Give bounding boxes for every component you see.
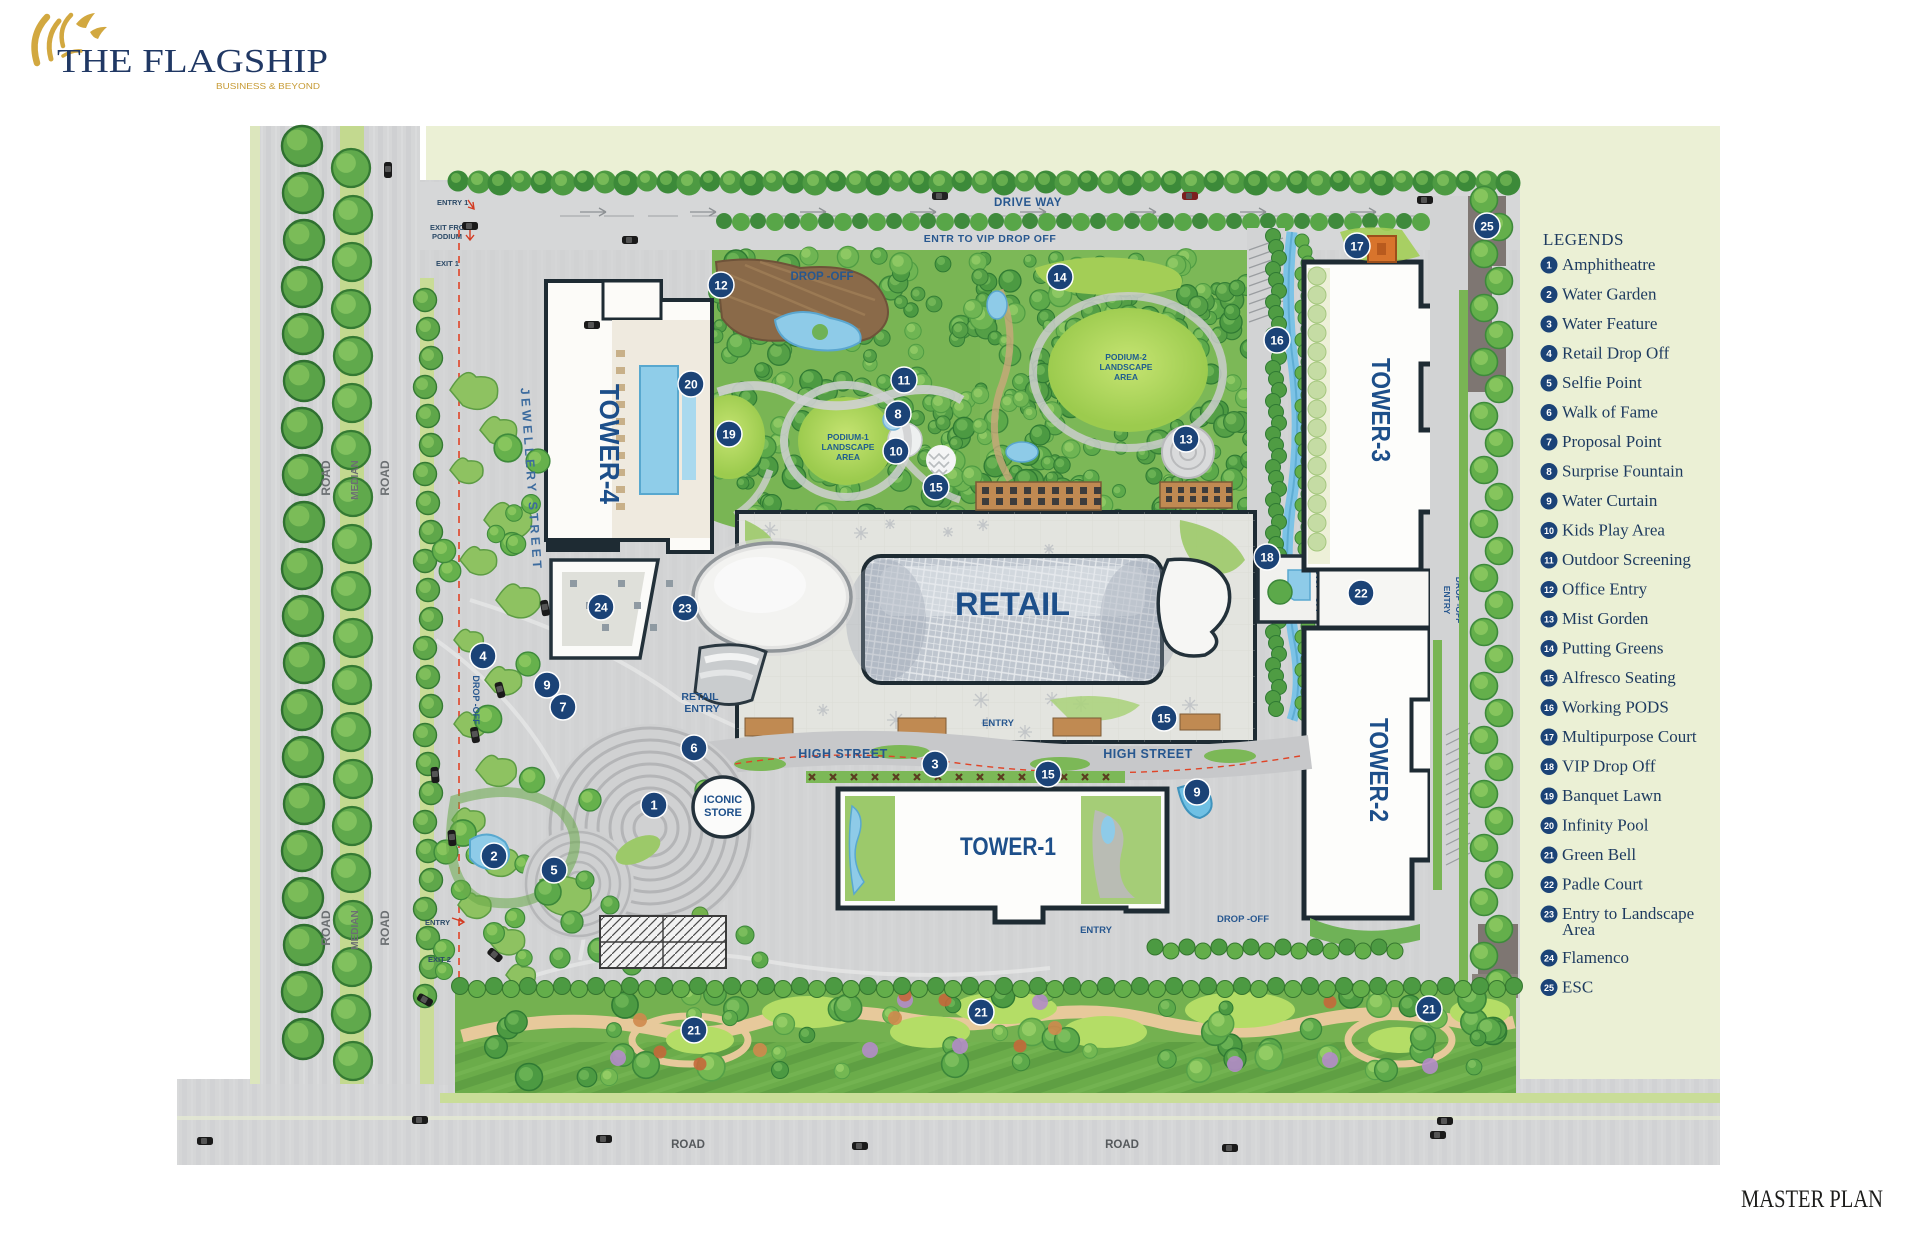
svg-text:Water Garden: Water Garden — [1562, 285, 1657, 304]
svg-text:Infinity Pool: Infinity Pool — [1562, 816, 1649, 835]
svg-text:19: 19 — [1544, 792, 1554, 802]
svg-text:RETAIL: RETAIL — [955, 586, 1070, 622]
svg-text:ROAD: ROAD — [319, 460, 333, 496]
svg-text:20: 20 — [684, 378, 698, 392]
svg-text:10: 10 — [889, 445, 903, 459]
svg-text:ICONIC: ICONIC — [704, 794, 743, 806]
svg-text:9: 9 — [1546, 497, 1552, 508]
svg-text:THE FLAGSHIP: THE FLAGSHIP — [57, 43, 328, 80]
svg-text:20: 20 — [1544, 821, 1554, 831]
svg-text:ENTRY: ENTRY — [1080, 925, 1113, 936]
svg-text:Selfie Point: Selfie Point — [1562, 373, 1642, 392]
svg-text:ROAD: ROAD — [671, 1139, 705, 1151]
svg-text:DROP -OFF: DROP -OFF — [471, 675, 481, 725]
svg-text:22: 22 — [1354, 587, 1368, 601]
svg-text:PODIUM-2: PODIUM-2 — [1105, 352, 1147, 362]
svg-text:13: 13 — [1179, 433, 1193, 447]
svg-text:18: 18 — [1544, 762, 1554, 772]
svg-text:BUSINESS & BEYOND: BUSINESS & BEYOND — [216, 81, 320, 91]
svg-text:Proposal Point: Proposal Point — [1562, 432, 1662, 451]
svg-text:ROAD: ROAD — [319, 910, 333, 946]
svg-text:DROP -OFF: DROP -OFF — [1217, 914, 1269, 925]
svg-text:12: 12 — [714, 279, 728, 293]
svg-text:Retail Drop Off: Retail Drop Off — [1562, 344, 1670, 363]
svg-text:TOWER-1: TOWER-1 — [960, 833, 1056, 861]
svg-text:14: 14 — [1053, 271, 1067, 285]
svg-text:ROAD: ROAD — [1105, 1139, 1139, 1151]
svg-text:19: 19 — [722, 428, 736, 442]
svg-text:25: 25 — [1480, 220, 1494, 234]
svg-text:21: 21 — [974, 1006, 988, 1020]
svg-text:1: 1 — [650, 798, 657, 813]
svg-text:15: 15 — [929, 481, 943, 495]
svg-text:2: 2 — [1546, 290, 1552, 301]
svg-text:Multipurpose Court: Multipurpose Court — [1562, 727, 1697, 746]
svg-text:14: 14 — [1544, 644, 1554, 654]
svg-text:LANDSCAPE: LANDSCAPE — [1100, 362, 1153, 372]
svg-text:AREA: AREA — [1114, 372, 1138, 382]
svg-text:18: 18 — [1260, 551, 1274, 565]
svg-text:8: 8 — [1546, 467, 1552, 478]
svg-text:EXIT 2: EXIT 2 — [428, 955, 451, 964]
svg-text:TOWER-3: TOWER-3 — [1366, 358, 1396, 462]
svg-text:Office Entry: Office Entry — [1562, 580, 1648, 599]
svg-text:12: 12 — [1544, 585, 1554, 595]
svg-text:23: 23 — [678, 602, 692, 616]
svg-text:9: 9 — [543, 678, 550, 693]
svg-text:23: 23 — [1544, 910, 1554, 920]
svg-text:ESC: ESC — [1562, 978, 1593, 997]
svg-text:RETAIL: RETAIL — [681, 691, 719, 703]
svg-text:6: 6 — [1546, 408, 1552, 419]
svg-text:5: 5 — [550, 863, 557, 878]
svg-text:1: 1 — [1546, 261, 1552, 272]
svg-text:24: 24 — [1544, 954, 1554, 964]
svg-text:17: 17 — [1544, 733, 1554, 743]
svg-text:LEGENDS: LEGENDS — [1543, 230, 1624, 249]
svg-text:11: 11 — [898, 374, 911, 388]
svg-text:MEDIAN: MEDIAN — [350, 910, 361, 949]
svg-text:10: 10 — [1544, 526, 1554, 536]
svg-text:15: 15 — [1544, 674, 1554, 684]
svg-text:STORE: STORE — [704, 807, 742, 819]
svg-text:LANDSCAPE: LANDSCAPE — [822, 442, 875, 452]
svg-text:ROAD: ROAD — [378, 460, 392, 496]
svg-text:TOWER-4: TOWER-4 — [594, 384, 625, 504]
svg-text:PODIUM-1: PODIUM-1 — [827, 432, 869, 442]
svg-text:HIGH STREET: HIGH STREET — [1103, 747, 1193, 761]
svg-text:DRIVE WAY: DRIVE WAY — [994, 197, 1062, 209]
svg-text:Water Curtain: Water Curtain — [1562, 491, 1658, 510]
svg-text:13: 13 — [1544, 615, 1554, 625]
svg-text:5: 5 — [1546, 379, 1552, 390]
svg-text:Walk of Fame: Walk of Fame — [1562, 403, 1658, 422]
svg-text:TOWER-2: TOWER-2 — [1364, 718, 1394, 822]
svg-text:ROAD: ROAD — [378, 910, 392, 946]
svg-text:2: 2 — [490, 849, 497, 864]
svg-text:17: 17 — [1350, 240, 1364, 254]
svg-text:EXIT 1: EXIT 1 — [436, 259, 459, 268]
svg-text:ENTRY: ENTRY — [1442, 586, 1452, 615]
svg-text:4: 4 — [1546, 349, 1552, 360]
svg-text:Surprise Fountain: Surprise Fountain — [1562, 462, 1684, 481]
svg-text:Kids Play Area: Kids Play Area — [1562, 521, 1665, 540]
svg-text:ENTRY: ENTRY — [684, 703, 719, 715]
svg-text:VIP Drop Off: VIP Drop Off — [1562, 757, 1656, 776]
svg-text:Alfresco Seating: Alfresco Seating — [1562, 668, 1676, 687]
svg-text:Amphitheatre: Amphitheatre — [1562, 255, 1655, 274]
svg-text:21: 21 — [1544, 851, 1554, 861]
svg-text:Water Feature: Water Feature — [1562, 314, 1657, 333]
svg-text:ENTRY 1: ENTRY 1 — [437, 198, 468, 207]
svg-text:21: 21 — [687, 1024, 701, 1038]
svg-text:25: 25 — [1544, 983, 1554, 993]
svg-text:ENTR TO VIP DROP OFF: ENTR TO VIP DROP OFF — [924, 233, 1057, 245]
svg-text:9: 9 — [1193, 785, 1200, 800]
svg-text:Working PODS: Working PODS — [1562, 698, 1669, 717]
svg-text:24: 24 — [594, 601, 608, 615]
svg-text:Banquet Lawn: Banquet Lawn — [1562, 786, 1662, 805]
svg-text:8: 8 — [894, 407, 901, 422]
svg-text:15: 15 — [1041, 768, 1055, 782]
svg-text:MASTER PLAN: MASTER PLAN — [1741, 1186, 1883, 1213]
svg-text:4: 4 — [479, 649, 487, 664]
svg-text:Putting Greens: Putting Greens — [1562, 639, 1664, 658]
svg-text:ENTRY: ENTRY — [425, 918, 450, 927]
svg-text:HIGH STREET: HIGH STREET — [798, 747, 888, 761]
svg-text:16: 16 — [1544, 703, 1554, 713]
svg-text:6: 6 — [690, 741, 697, 756]
svg-text:3: 3 — [1546, 320, 1552, 331]
svg-text:Padle Court: Padle Court — [1562, 875, 1643, 894]
svg-text:3: 3 — [931, 757, 938, 772]
svg-text:AREA: AREA — [836, 452, 860, 462]
svg-text:DROP -OFF: DROP -OFF — [790, 271, 853, 283]
svg-text:21: 21 — [1422, 1003, 1436, 1017]
svg-text:7: 7 — [559, 700, 566, 715]
svg-text:7: 7 — [1546, 438, 1552, 449]
svg-text:PODIUM: PODIUM — [432, 232, 462, 241]
svg-text:Area: Area — [1562, 920, 1595, 939]
svg-text:22: 22 — [1544, 880, 1554, 890]
svg-text:15: 15 — [1157, 712, 1171, 726]
svg-text:Green Bell: Green Bell — [1562, 845, 1636, 864]
svg-text:11: 11 — [1544, 556, 1554, 566]
svg-text:16: 16 — [1270, 334, 1284, 348]
svg-text:ENTRY: ENTRY — [982, 718, 1015, 729]
svg-text:MEDIAN: MEDIAN — [350, 460, 361, 499]
svg-text:Mist Gorden: Mist Gorden — [1562, 609, 1649, 628]
svg-text:Outdoor Screening: Outdoor Screening — [1562, 550, 1691, 569]
svg-text:Flamenco: Flamenco — [1562, 948, 1629, 967]
